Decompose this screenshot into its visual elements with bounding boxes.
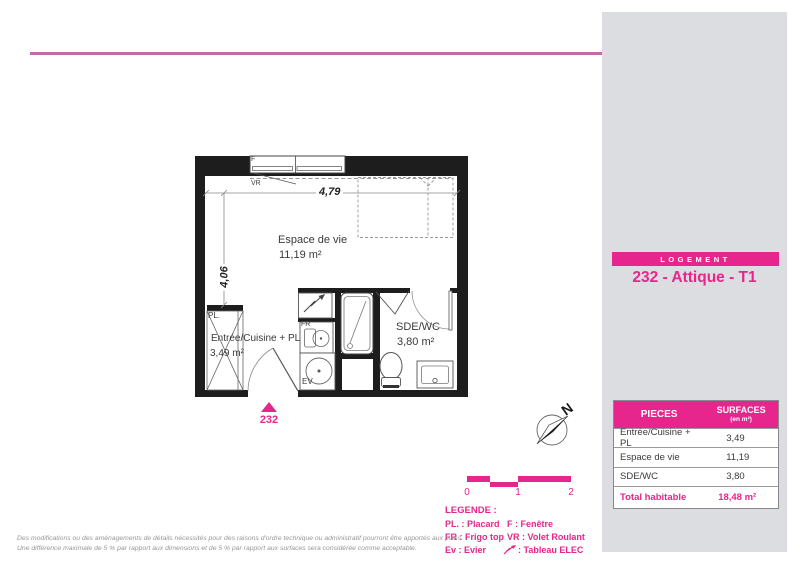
room-bath-name: SDE/WC: [396, 321, 440, 333]
room-entry-area: 3,49 m²: [210, 348, 244, 359]
compass-icon: [525, 398, 587, 450]
row-value: 3,80: [704, 471, 778, 482]
room-bath-area: 3,80 m²: [397, 336, 434, 348]
legend-title: LEGENDE :: [445, 505, 497, 516]
scale-tick-0: 0: [461, 487, 473, 498]
legend-item-tableau-elec: : Tableau ELEC: [518, 545, 583, 555]
unit-number: 232: [257, 414, 281, 426]
logement-banner-label: LOGEMENT: [660, 255, 731, 264]
wall-bottom-left: [195, 390, 248, 397]
shower-icon: [341, 293, 373, 354]
wall-shower-left: [335, 288, 341, 359]
disclaimer-line-2: Une différence maximale de 5 % par rappo…: [17, 545, 417, 552]
row-value: 3,49: [704, 433, 778, 444]
total-label: Total habitable: [614, 492, 704, 503]
bed-outline: [358, 178, 453, 238]
room-entry-name: Entrée/Cuisine + PL: [211, 333, 300, 344]
unit-title: 232 - Attique - T1: [602, 269, 787, 287]
wall-shower-right: [373, 293, 380, 359]
table-row: SDE/WC 3,80: [614, 467, 778, 486]
header-surfaces: SURFACES (en m²): [704, 401, 778, 428]
room-living-area: 11,19 m²: [279, 249, 322, 261]
surfaces-table: PIECES SURFACES (en m²) Entrée/Cuisine +…: [613, 400, 779, 509]
row-value: 11,19: [704, 452, 778, 463]
wall-right: [457, 156, 468, 397]
scale-tick-1: 1: [512, 487, 524, 498]
table-total-row: Total habitable 18,48 m²: [614, 486, 778, 508]
header-rule: [30, 52, 602, 55]
entrance-door: [248, 348, 298, 391]
fridge-label: FR: [301, 321, 310, 328]
header-pieces: PIECES: [614, 401, 704, 428]
wall-bottom-right: [298, 390, 468, 397]
sink-label: EV: [302, 377, 313, 386]
window-icon: [250, 156, 345, 184]
row-name: Espace de vie: [614, 452, 704, 463]
toilet-icon: [380, 353, 402, 389]
tableau-elec-icon: [299, 293, 333, 318]
surfaces-table-header: PIECES SURFACES (en m²): [614, 401, 778, 428]
legend-item-evier: Ev : Evier: [445, 545, 486, 555]
scale-bar: [518, 476, 571, 482]
tableau-elec-legend-icon: [503, 545, 517, 555]
scale-bar: [467, 476, 490, 482]
wall-left: [195, 156, 205, 397]
wall-middle: [298, 288, 410, 293]
legend-item-placard: PL. : Placard: [445, 519, 500, 529]
wall-duct-right: [373, 359, 380, 390]
shutter-label: VR: [251, 180, 261, 187]
header-surfaces-unit: (en m²): [730, 416, 752, 423]
entrance-marker-triangle: [261, 402, 277, 412]
table-row: Espace de vie 11,19: [614, 447, 778, 466]
dimension-width: 4,79: [316, 186, 343, 198]
dimension-height: 4,06: [219, 263, 231, 290]
disclaimer-line-1: Des modifications ou des aménagements de…: [17, 535, 461, 542]
row-name: SDE/WC: [614, 471, 704, 482]
total-value: 18,48 m²: [704, 492, 778, 503]
legend-item-fenetre: F : Fenêtre: [507, 519, 553, 529]
table-row: Entrée/Cuisine + PL 3,49: [614, 428, 778, 447]
closet-label: PL.: [208, 311, 220, 320]
floorplan-page: LOGEMENT 232 - Attique - T1 PIECES SURFA…: [0, 0, 800, 566]
washbasin-icon: [417, 361, 453, 388]
header-surfaces-label: SURFACES: [717, 406, 766, 416]
wall-duct-left: [335, 359, 342, 390]
row-name: Entrée/Cuisine + PL: [614, 427, 704, 449]
scale-tick-2: 2: [565, 487, 577, 498]
legend-item-volet: VR : Volet Roulant: [507, 532, 585, 542]
window-label: F: [251, 156, 255, 163]
logement-banner: LOGEMENT: [612, 252, 779, 266]
room-living-name: Espace de vie: [278, 234, 347, 246]
shower-door: [376, 291, 409, 314]
